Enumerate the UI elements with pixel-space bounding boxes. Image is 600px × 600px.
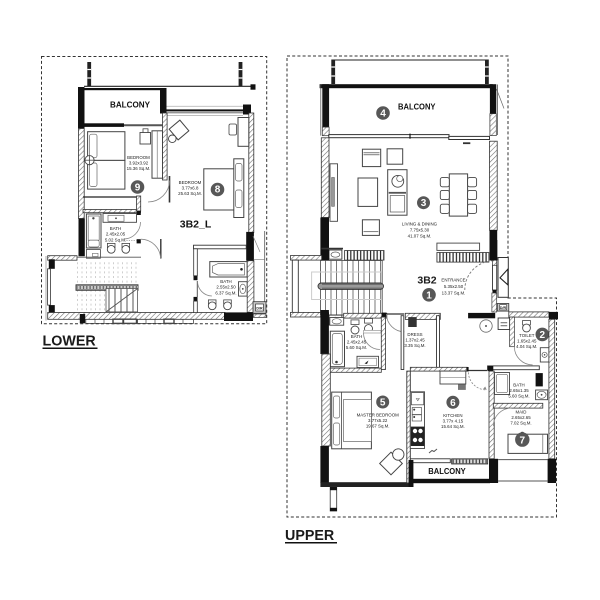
svg-text:BATH: BATH	[220, 279, 231, 284]
svg-text:5.02 Sq.M.: 5.02 Sq.M.	[105, 237, 126, 242]
svg-text:BEDROOM: BEDROOM	[127, 155, 150, 160]
svg-text:19.67 Sq.M.: 19.67 Sq.M.	[366, 423, 390, 428]
svg-text:3.77x 4.15: 3.77x 4.15	[443, 418, 464, 423]
svg-text:7.75x5.30: 7.75x5.30	[410, 228, 430, 233]
svg-text:TOILET: TOILET	[519, 333, 535, 338]
svg-text:BATH: BATH	[351, 334, 362, 339]
svg-text:8: 8	[215, 185, 221, 196]
svg-text:2.65x1.35: 2.65x1.35	[509, 388, 529, 393]
svg-text:4.04 Sq.M.: 4.04 Sq.M.	[516, 344, 537, 349]
svg-text:15.36 Sq.M.: 15.36 Sq.M.	[127, 166, 151, 171]
svg-text:2.55x2.50: 2.55x2.50	[216, 285, 236, 290]
svg-text:ENTRANCE: ENTRANCE	[441, 277, 465, 282]
svg-text:MASTER BEDROOM: MASTER BEDROOM	[357, 412, 400, 417]
svg-text:6.37 Sq.M.: 6.37 Sq.M.	[215, 290, 236, 295]
svg-text:BALCONY: BALCONY	[110, 100, 150, 110]
svg-text:5: 5	[380, 398, 386, 409]
svg-text:1.65x2.45: 1.65x2.45	[517, 339, 537, 344]
svg-text:3: 3	[421, 198, 427, 209]
svg-text:3.92x3.92: 3.92x3.92	[129, 160, 149, 165]
svg-text:7: 7	[520, 435, 526, 446]
svg-text:D/R: D/R	[256, 307, 263, 311]
svg-text:15.64 Sq.M.: 15.64 Sq.M.	[441, 424, 465, 429]
svg-text:BALCONY: BALCONY	[428, 466, 466, 476]
svg-text:5.60 Sq.M.: 5.60 Sq.M.	[346, 345, 367, 350]
svg-text:5.60 Sq.M.: 5.60 Sq.M.	[508, 393, 529, 398]
svg-text:7.02 Sq.M.: 7.02 Sq.M.	[510, 420, 531, 425]
svg-text:BATH: BATH	[513, 382, 524, 387]
svg-text:BEDROOM: BEDROOM	[179, 180, 202, 185]
svg-text:2.45x2.05: 2.45x2.05	[106, 232, 126, 237]
svg-text:UPPER: UPPER	[285, 528, 335, 544]
svg-text:2.45x2.45: 2.45x2.45	[347, 340, 367, 345]
svg-text:3B2: 3B2	[417, 275, 436, 287]
svg-text:41.07 Sq.M.: 41.07 Sq.M.	[408, 234, 432, 239]
svg-text:BALCONY: BALCONY	[398, 101, 436, 111]
svg-text:1.37x2.45: 1.37x2.45	[405, 338, 425, 343]
svg-text:MAID: MAID	[516, 409, 527, 414]
svg-text:D/R: D/R	[500, 306, 507, 310]
svg-text:3.77x5.22: 3.77x5.22	[368, 418, 388, 423]
svg-text:DRESS: DRESS	[407, 332, 422, 337]
svg-text:BATH: BATH	[110, 226, 121, 231]
svg-text:LIVING & DINING: LIVING & DINING	[402, 222, 438, 227]
svg-text:2.65x2.65: 2.65x2.65	[511, 415, 531, 420]
svg-text:3B2_L: 3B2_L	[180, 219, 212, 231]
svg-text:5.35x2.50: 5.35x2.50	[444, 284, 464, 289]
svg-text:9: 9	[135, 183, 141, 194]
svg-text:6: 6	[450, 398, 456, 409]
svg-text:3.35 Sq.M.: 3.35 Sq.M.	[404, 343, 425, 348]
svg-text:25.63 Sq.M.: 25.63 Sq.M.	[178, 191, 202, 196]
svg-text:1: 1	[426, 290, 432, 301]
svg-text:4: 4	[380, 109, 386, 120]
svg-text:3.77x6.8: 3.77x6.8	[182, 186, 199, 191]
svg-text:LOWER: LOWER	[43, 334, 97, 350]
svg-text:2: 2	[540, 330, 546, 341]
svg-text:13.37 Sq.M.: 13.37 Sq.M.	[442, 291, 466, 296]
svg-text:KITCHEN: KITCHEN	[443, 413, 462, 418]
